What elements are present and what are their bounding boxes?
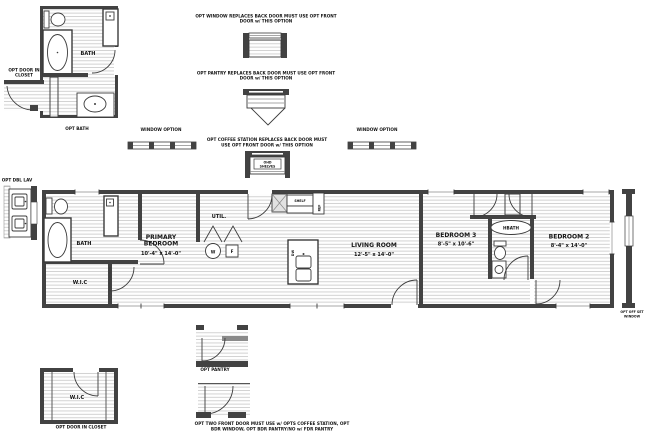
note-line: DOOR w/ THIS OPTION (240, 76, 293, 81)
bathtub-icon (44, 218, 71, 262)
note-line: USE OPT FRONT DOOR w/ THIS OPTION (221, 143, 313, 148)
opt-front-door-note: OPT TWO FRONT DOOR MUST USE w/ OPTS COFF… (195, 421, 350, 432)
floor (46, 194, 610, 304)
window (556, 304, 590, 309)
room-dims-living: 12'-5" x 14'-0" (354, 252, 394, 258)
room-dims-primary: 10'-4" x 14'-0" (141, 251, 181, 257)
room-label-living: LIVING ROOM (351, 242, 397, 249)
opt-door-in-closet-detail-top: OPT DOOR IN CLOSET (4, 68, 44, 112)
sink-icon (12, 216, 27, 231)
door-opening (73, 368, 99, 372)
toilet-icon (494, 241, 506, 246)
opt-door-in-closet-caption: OPT DOOR IN CLOSET (56, 425, 107, 430)
ref-label: REF (318, 205, 322, 212)
window (583, 190, 609, 195)
base-cabinet (287, 206, 313, 213)
shower-icon (103, 9, 118, 46)
room-label-bath: BATH (77, 241, 92, 247)
window (118, 304, 164, 309)
kitchen-island: DW (288, 240, 318, 284)
shower-icon (104, 196, 118, 236)
shelf-label: SHELF (294, 199, 305, 203)
caption: OPT DBL LAV (2, 178, 33, 183)
bathtub-icon (43, 30, 72, 75)
furnace-label: F (231, 249, 234, 254)
pantry-corner-shelf (251, 108, 285, 125)
window-option-left: WINDOW OPTION (128, 127, 196, 149)
opt-door-in-closet-detail-bottom: W.I.C (40, 368, 118, 424)
closet-wall (50, 77, 58, 117)
main-floorplan: W F SHELF REF DW (42, 190, 615, 309)
opt-coffee-note: OPT COFFEE STATION REPLACES BACK DOOR MU… (207, 137, 327, 148)
front-door-opening (391, 304, 418, 308)
note-line: OPT TWO FRONT DOOR MUST USE w/ OPTS COFF… (195, 421, 350, 426)
washer-label: W (211, 249, 216, 254)
opt-pantry-detail-top (243, 89, 289, 125)
window (75, 190, 99, 195)
opt-bath-caption: OPT BATH (65, 126, 89, 131)
room-label-wic-detail: W.I.C (70, 395, 85, 401)
vanity-icon (492, 261, 506, 278)
floorplan-drawing: BATH OPT BATH OPT DOOR IN CLOSET OPT WIN… (0, 0, 650, 438)
opt-bath-detail: BATH (40, 6, 118, 118)
opt-front-door-detail (196, 383, 250, 418)
toilet-icon (46, 198, 68, 214)
dw-label: DW (291, 249, 295, 256)
note-line: OPT COFFEE STATION REPLACES BACK DOOR MU… (207, 137, 327, 142)
window (290, 304, 344, 309)
vanity-sink-icon (77, 93, 114, 117)
caption: WINDOW OPTION (141, 127, 182, 132)
caption-line: OPT OFF SET (620, 310, 644, 314)
wall (43, 73, 88, 77)
room-label-bath: BATH (81, 51, 96, 57)
room-label-hbath: HBATH (503, 226, 519, 231)
back-door-opening (248, 190, 272, 194)
room-dims-bed2: 8'-4" x 14'-0" (551, 243, 588, 249)
caption: WINDOW OPTION (357, 127, 398, 132)
caption-line: CLOSET (15, 73, 33, 78)
opt-coffee-detail: OHD SHELVES (245, 151, 290, 178)
caption-line: WINDOW (624, 315, 641, 319)
opt-pantry-caption: OPT PANTRY (200, 367, 230, 372)
floorplan-sheet: BATH OPT BATH OPT DOOR IN CLOSET OPT WIN… (0, 0, 650, 438)
window (610, 222, 615, 254)
room-label-util: UTIL. (212, 214, 227, 220)
note-line: BDR WINDOW, OPT BDR PANTRY/NO w/ FDR PAN… (211, 427, 334, 432)
room-label-bed2: BEDROOM 2 (549, 234, 590, 241)
opt-window-note: OPT WINDOW REPLACES BACK DOOR MUST USE O… (195, 14, 336, 24)
window-option-right: WINDOW OPTION (348, 127, 416, 149)
bed2-door-opening (530, 280, 534, 304)
room-dims-bed3: 8'-5" x 10'-6" (438, 242, 475, 248)
coffee-box-label: SHELVES (260, 164, 276, 168)
sink-icon (12, 194, 27, 209)
opt-window-detail (243, 33, 287, 58)
opt-dbl-lav-detail: OPT DBL LAV (2, 178, 37, 241)
opt-pantry-note: OPT PANTRY REPLACES BACK DOOR MUST USE O… (197, 71, 335, 81)
room-label-primary: BEDROOM (144, 241, 178, 248)
opt-offset-window-detail: OPT OFF SET WINDOW (620, 189, 644, 319)
room-label-bed3: BEDROOM 3 (436, 232, 477, 239)
opt-pantry-detail-bottom: OPT PANTRY (196, 325, 248, 372)
toilet-icon (495, 247, 506, 260)
toilet-icon (44, 11, 65, 28)
note-line: DOOR w/ THIS OPTION (240, 19, 293, 24)
room-label-wic: W.I.C (73, 280, 88, 286)
window (428, 190, 454, 195)
